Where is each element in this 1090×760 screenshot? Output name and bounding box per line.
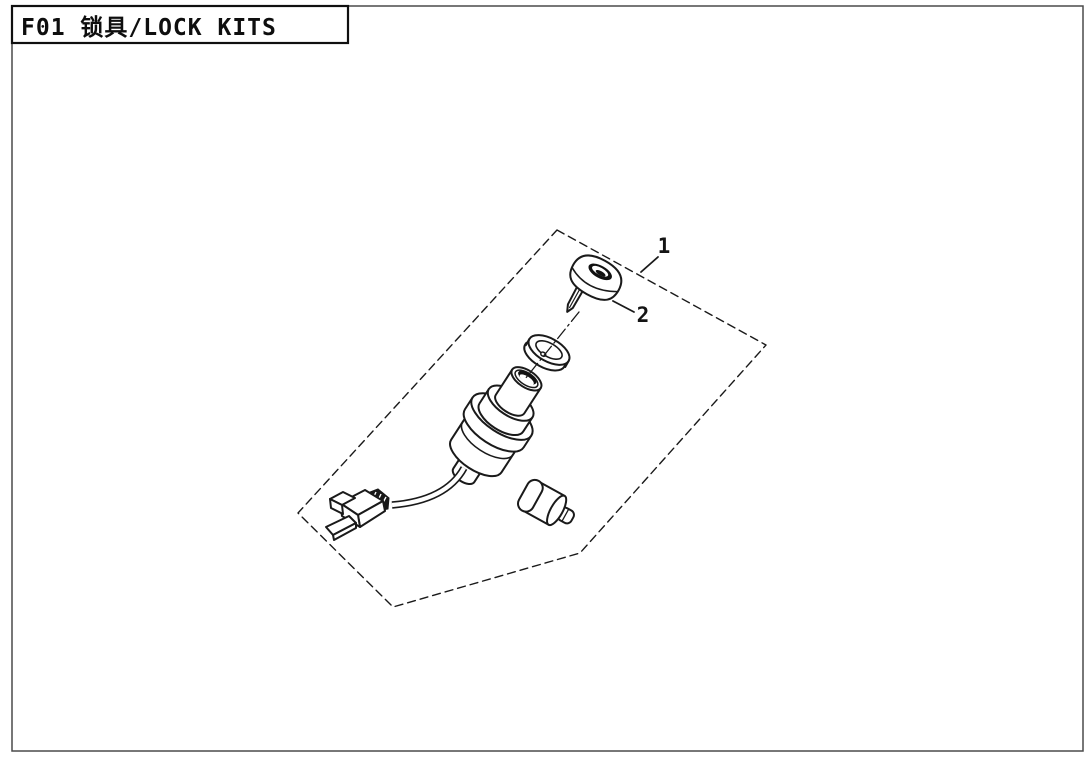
callout-2: 2 bbox=[613, 301, 649, 327]
callout-1-leader-line bbox=[641, 257, 658, 272]
key-cap-icon bbox=[552, 248, 628, 328]
diagram-canvas: F01 锁具/LOCK KITS bbox=[0, 0, 1090, 760]
callout-2-leader-line bbox=[613, 301, 634, 312]
wire-connector-icon bbox=[326, 489, 389, 540]
lock-barrel-icon bbox=[515, 477, 580, 534]
catalog-page: F01 锁具/LOCK KITS bbox=[0, 0, 1090, 760]
callout-1: 1 bbox=[641, 234, 670, 272]
page-border bbox=[12, 6, 1083, 751]
callout-2-label: 2 bbox=[637, 303, 650, 327]
callout-1-label: 1 bbox=[658, 234, 671, 258]
ignition-switch-body-icon bbox=[431, 353, 561, 500]
page-title: F01 锁具/LOCK KITS bbox=[21, 14, 277, 41]
